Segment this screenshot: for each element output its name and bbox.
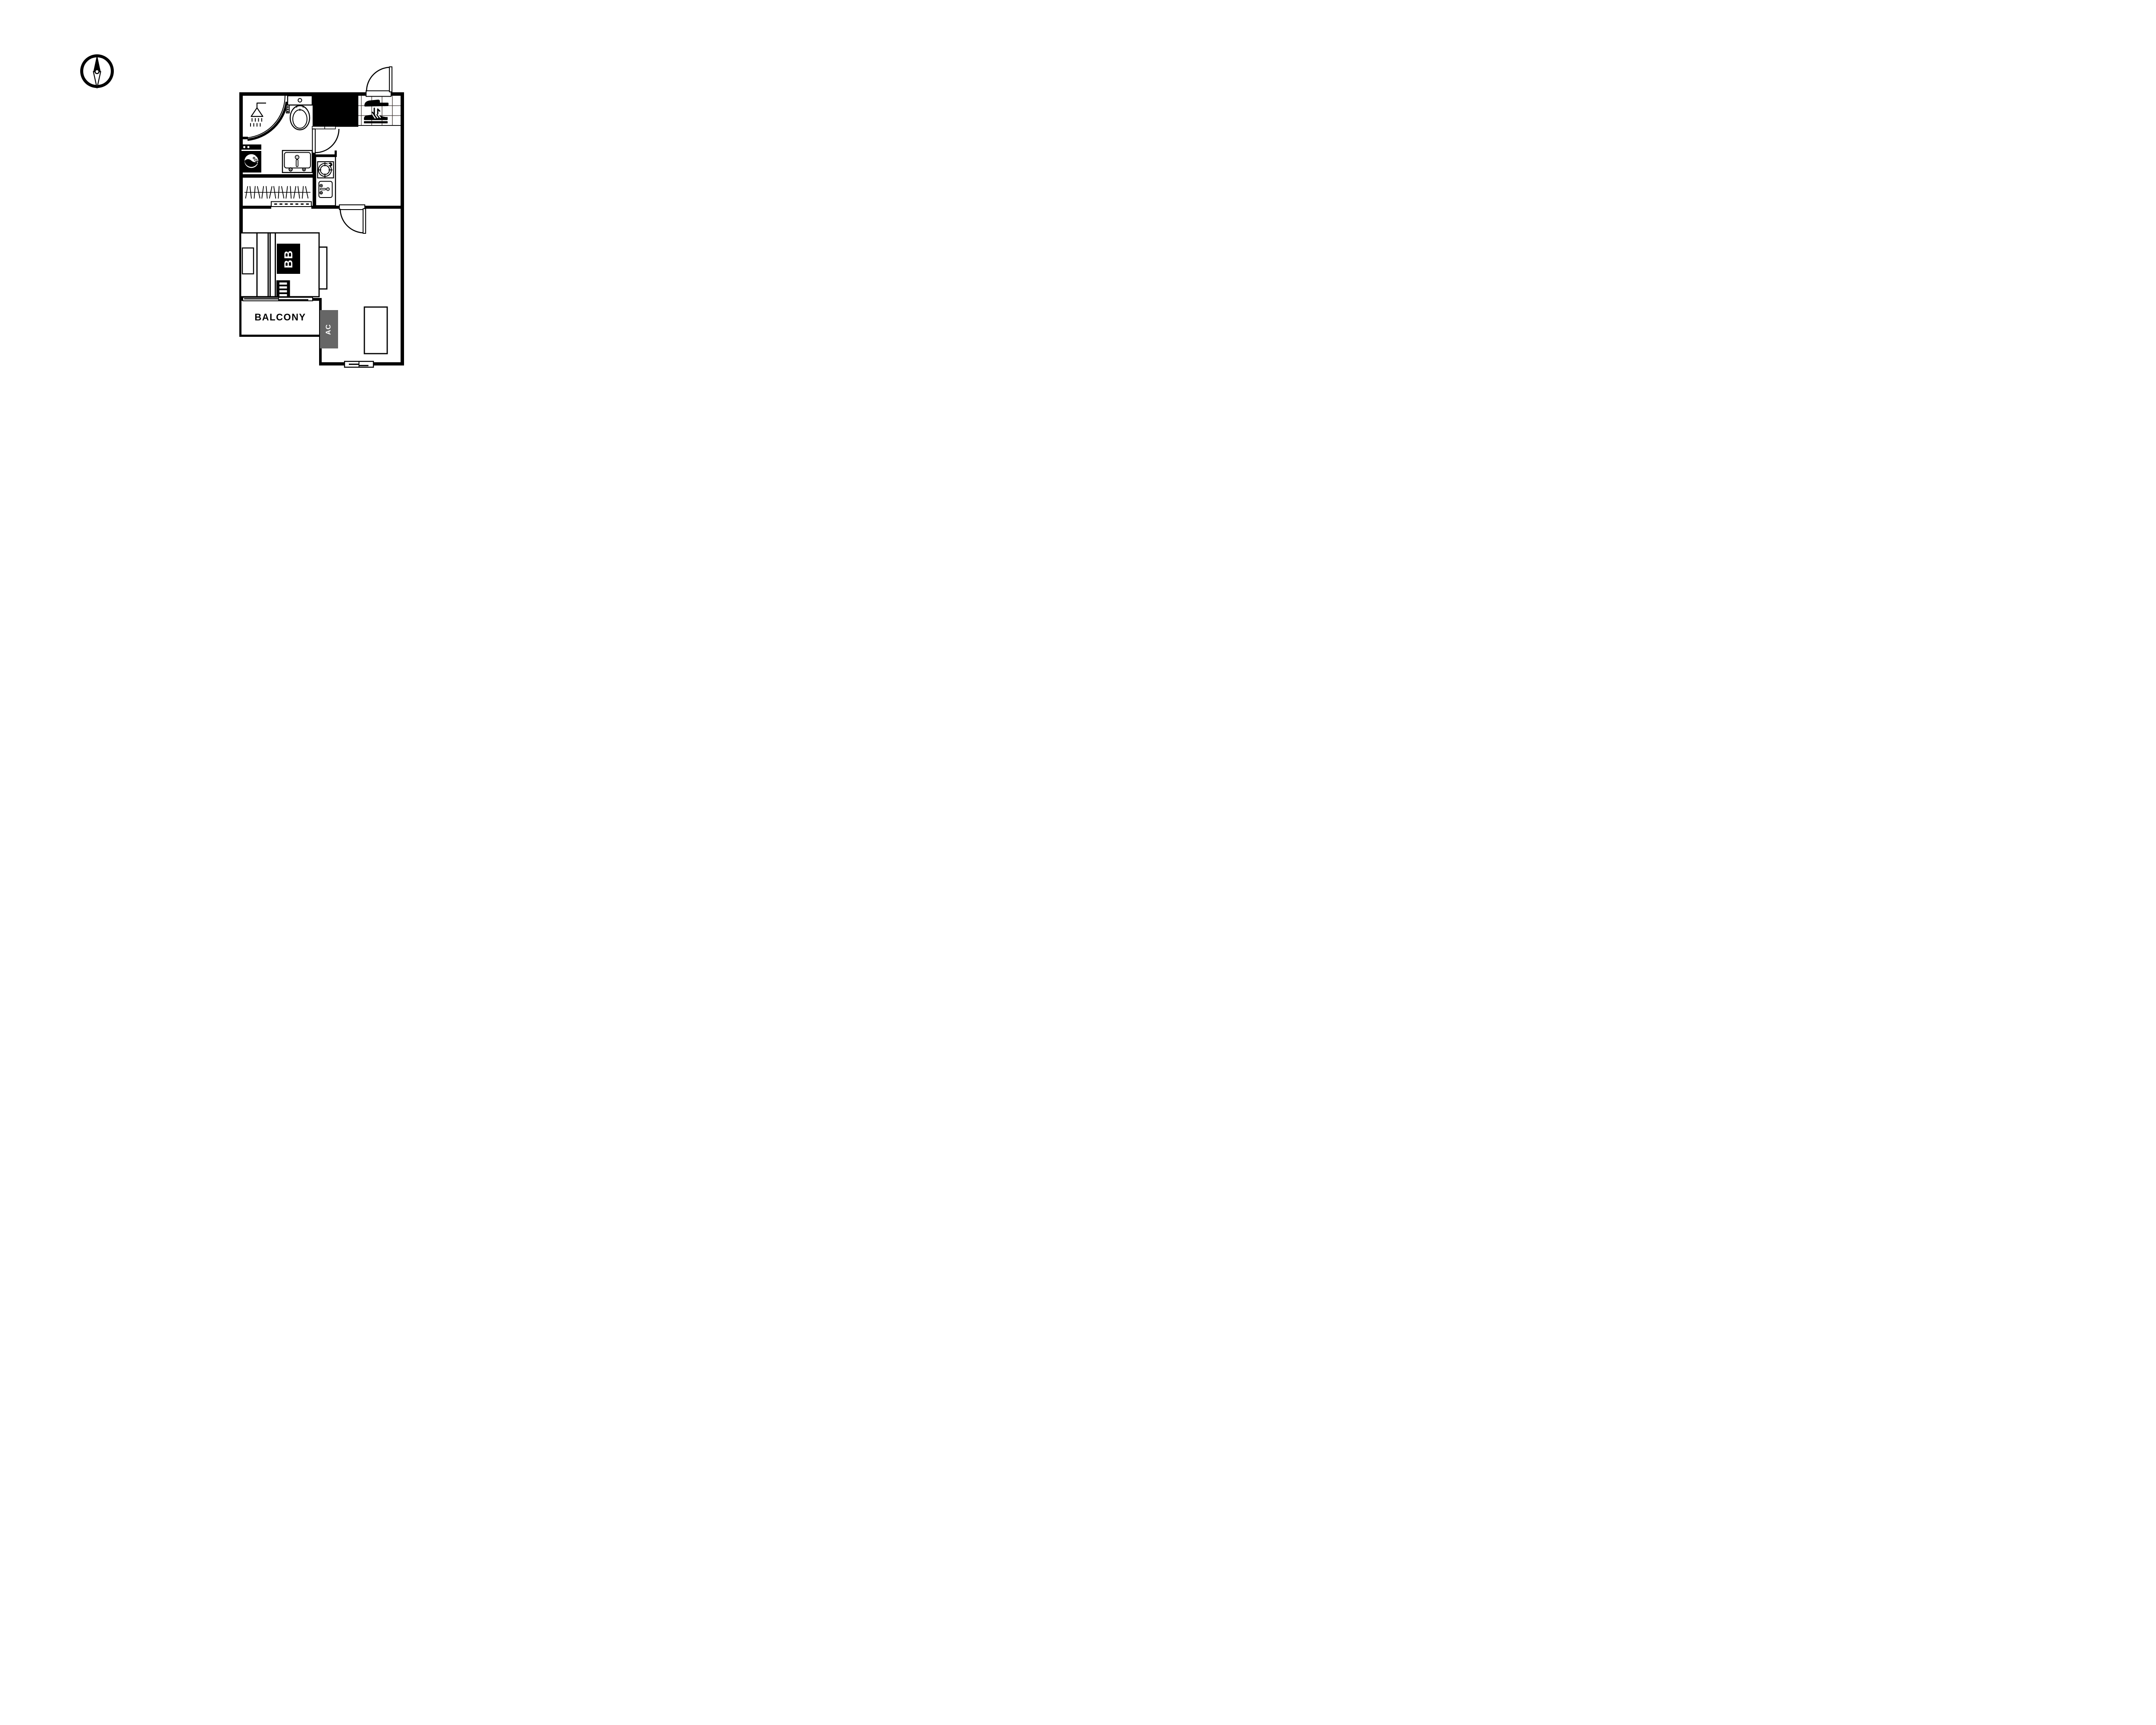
kitchen-sink-icon: [319, 182, 332, 198]
hanger-rail-icon: [244, 186, 310, 199]
bed-ladder-icon: [276, 280, 290, 297]
wall-bedroom-top-a: [239, 206, 271, 209]
wall-bathroom-bottom: [239, 174, 316, 178]
shower-icon: [243, 96, 287, 140]
closet-slider: [271, 202, 311, 207]
balcony-label-text: BALCONY: [254, 312, 306, 323]
utility-shaft: [316, 96, 358, 127]
ac-unit-badge: AC: [320, 310, 338, 348]
bunk-bed-label: BB: [277, 244, 300, 274]
bed-side-strip: [257, 233, 268, 297]
wall-bottom-right-seg: [373, 362, 404, 366]
stove-burner-icon: [317, 162, 334, 178]
bed-side-shelf: [319, 247, 327, 289]
wall-bottom-left-seg: [319, 362, 345, 366]
compass-icon: [82, 55, 113, 88]
washing-machine-icon: [241, 144, 261, 172]
entry-floor-edge-line: [358, 125, 401, 126]
window-icon: [345, 361, 373, 367]
wall-stub-hall: [335, 151, 337, 157]
wall-slider-stub: [313, 298, 322, 301]
bb-label-text: BB: [282, 250, 295, 268]
floor-plan-drawing: [0, 0, 647, 431]
shoe-change-icon: [364, 100, 389, 123]
balcony-sliding-door: [243, 298, 313, 301]
table: [364, 307, 387, 354]
balcony-label: BALCONY: [241, 310, 319, 324]
kitchenette: [316, 157, 335, 206]
bedroom-door: [339, 205, 366, 233]
toilet-icon: [286, 96, 312, 130]
bathroom-door: [312, 126, 339, 153]
wall-balcony-bottom: [239, 335, 322, 337]
floor-plan-canvas: BALCONY AC BB: [0, 0, 647, 431]
ac-label-text: AC: [325, 324, 333, 335]
sink-vanity-icon: [282, 151, 312, 172]
wall-bedroom-top-c: [364, 206, 404, 209]
bed-pillow: [242, 248, 254, 274]
entry-door: [366, 67, 392, 97]
wall-right: [401, 92, 404, 366]
